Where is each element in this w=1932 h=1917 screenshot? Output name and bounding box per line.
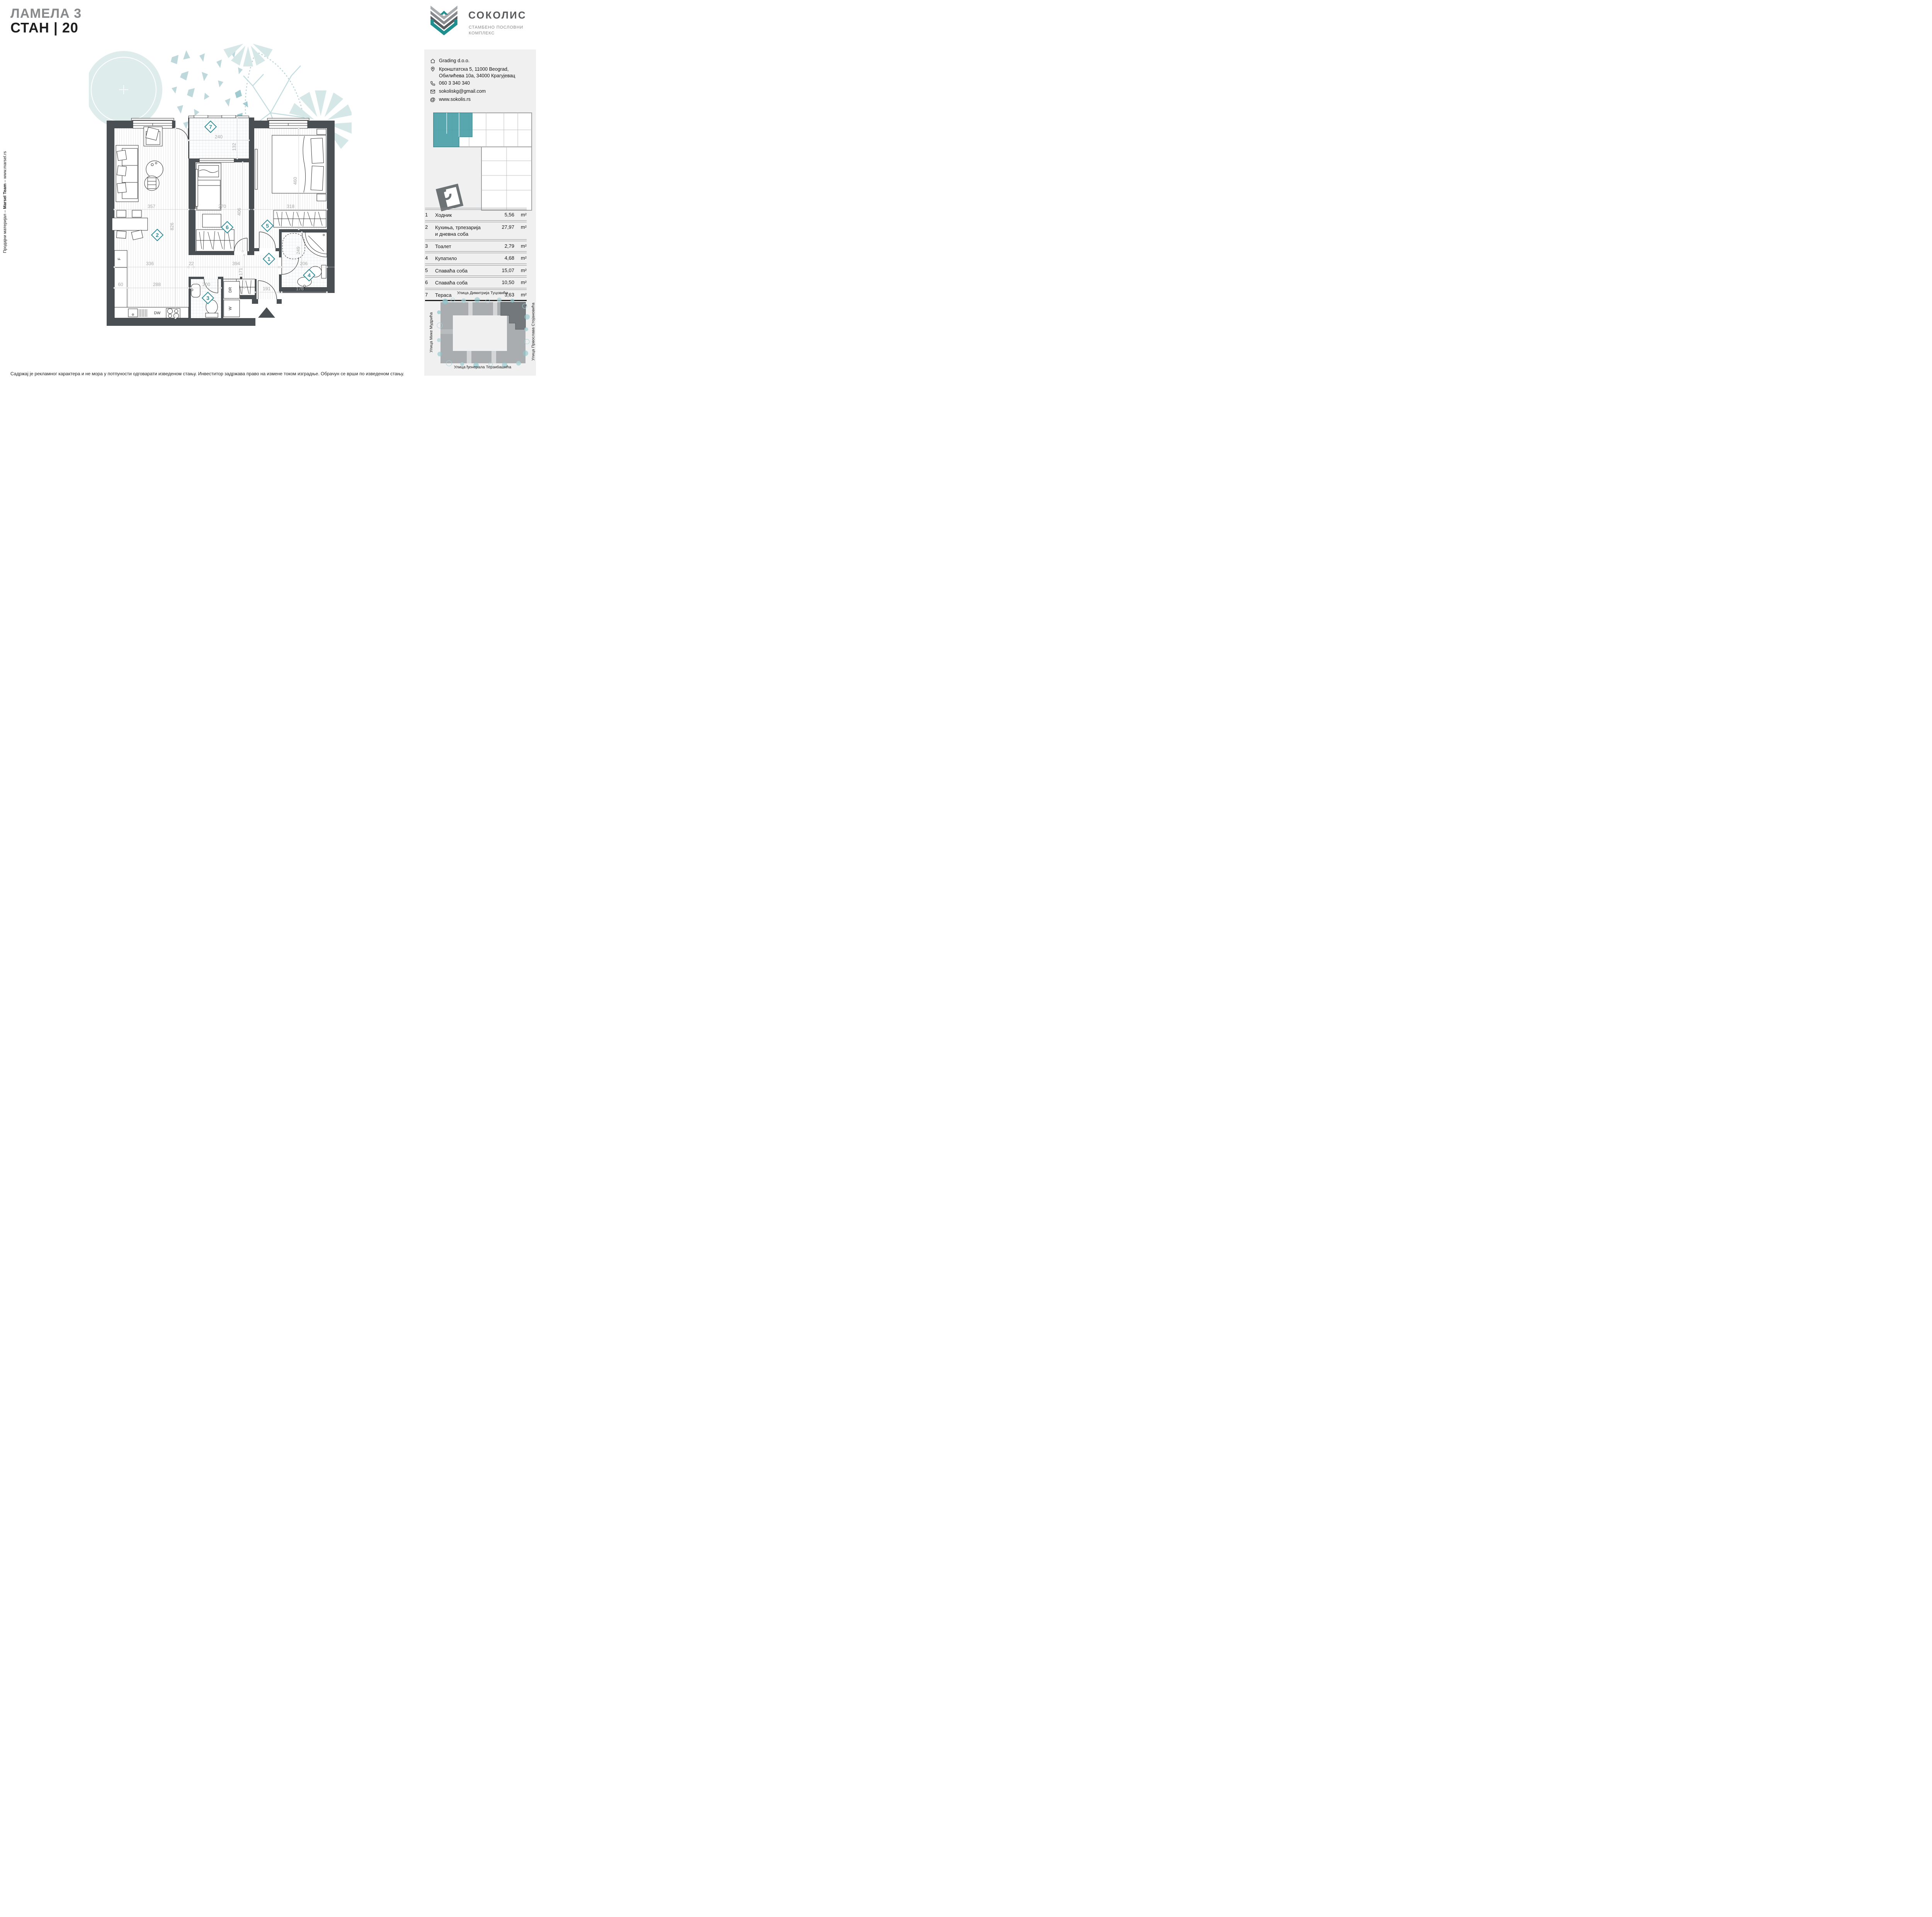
tv-panel-bedroom2 (196, 169, 198, 206)
dim-bedroom2-w: 270 (218, 204, 226, 209)
window-sill (131, 118, 174, 120)
nightstand (317, 194, 326, 201)
flyer-page: ЛАМЕЛА 3 СТАН | 20 Продајни материјал – … (0, 0, 542, 383)
wardrobe-bedroom2 (196, 230, 234, 251)
dim-bedroom1-h: 460 (293, 177, 298, 185)
fridge-label: F (117, 258, 122, 260)
room-number-bedroom2: 6 (226, 224, 229, 230)
disclaimer-text: Садржај је рекламног карактера и не мора… (10, 371, 455, 376)
website-url: www.sokolis.rs (439, 97, 471, 102)
dim-hall-w: 394 (232, 261, 240, 266)
nightstand (317, 129, 326, 134)
dim-entry-w: 191 (263, 286, 270, 291)
tree-burst-top (223, 39, 272, 66)
dim-sink-w: 176 (296, 286, 304, 291)
dishwasher-label: DW (154, 311, 161, 315)
home-icon (430, 58, 436, 65)
bedroom2-desk (202, 214, 221, 227)
table-row: 6Спаваћа соба10,50m² (425, 278, 527, 288)
table-row: 3Тоалет2,79m² (425, 241, 527, 252)
entrance-arrow (258, 307, 275, 318)
company-address: Кронштатска 5, 11000 Beograd, Обилићева … (439, 66, 536, 79)
dim-toilet-w: 200 (202, 282, 210, 287)
street-label-top: Улица Димитрија Туцовића (457, 291, 508, 295)
phone-number: 060 3 340 340 (439, 80, 470, 87)
room-number-bedroom1: 5 (266, 223, 269, 229)
floor-plan: DW F (107, 115, 335, 326)
dim-counter-d: 60 (118, 282, 123, 287)
dim-bath-w: 206 (300, 261, 308, 266)
at-icon: @ (430, 97, 436, 102)
armchair (144, 127, 162, 146)
dim-bedroom2-h: 406 (236, 208, 242, 216)
logo-mark-icon (430, 5, 458, 36)
table-row: 1Ходник5,56m² (425, 210, 527, 220)
dim-kitchen-w: 336 (146, 261, 154, 266)
street-label-right: Улица Првослава Стојановића (531, 303, 536, 361)
brand-subtitle: СТАМБЕНО ПОСЛОВНИ КОМПЛЕКС (469, 25, 523, 36)
railing-planter (194, 115, 208, 118)
room-number-bathroom: 4 (308, 272, 311, 278)
email-address: sokoliskg@gmail.com (439, 89, 486, 95)
location-pin-icon (430, 66, 436, 79)
note-suffix: – www.marsel.rs (3, 151, 7, 184)
page-title: ЛАМЕЛА 3 СТАН | 20 (10, 7, 82, 35)
company-name: Grading d.o.o. (439, 58, 469, 65)
lamela-title: ЛАМЕЛА 3 (10, 7, 82, 20)
phone-icon (430, 80, 436, 87)
dim-living-w: 357 (148, 204, 155, 209)
site-plan (429, 297, 536, 369)
street-label-left: Улица Мике Мудрића (429, 312, 434, 352)
wardrobe-bedroom1 (274, 210, 326, 227)
table-row: 2Кухиња, трпезаријаи дневна соба27,97m² (425, 222, 527, 239)
dim-living-h: 826 (169, 223, 175, 230)
dim-wall: 22 (189, 261, 194, 266)
dim-counter-w: 288 (153, 282, 161, 287)
room-number-living: 2 (156, 232, 159, 238)
room-number-hall: 1 (267, 256, 270, 262)
note-prefix: Продајни материјал – (3, 209, 7, 253)
rooms-table: 1Ходник5,56m² 2Кухиња, трпезаријаи дневн… (425, 208, 527, 312)
sofa (116, 145, 138, 202)
dryer-label: DR (228, 287, 233, 293)
mail-icon (430, 89, 436, 95)
dim-terrace-h: 132 (231, 143, 237, 151)
street-label-bottom: Улица ђенерала Терзибашића (454, 365, 511, 369)
dim-terrace-w: 240 (215, 134, 223, 140)
tv-panel-bedroom1 (255, 149, 257, 189)
brand-name: СОКОЛИС (468, 9, 527, 21)
dim-hall-h: 171 (238, 268, 243, 276)
room-number-terrace: 7 (209, 124, 212, 130)
table-row: 4Купатило4,68m² (425, 253, 527, 264)
north-compass-icon (437, 185, 462, 209)
contact-block: Grading d.o.o. Кронштатска 5, 11000 Beog… (430, 58, 537, 103)
note-team: Marsel Team (3, 184, 7, 209)
brand-logo: СОКОЛИС СТАМБЕНО ПОСЛОВНИ КОМПЛЕКС (430, 4, 536, 43)
dim-bedroom1-w: 318 (287, 204, 294, 209)
dim-shower-h: 249 (296, 247, 301, 254)
double-bed (272, 129, 326, 201)
kitchen-sink (128, 309, 138, 317)
room-number-toilet: 3 (206, 295, 209, 301)
table-row: 5Спаваћа соба15,07m² (425, 266, 527, 276)
sales-material-note: Продајни материјал – Marsel Team – www.m… (3, 151, 7, 253)
railing-planter (222, 115, 236, 118)
washer-label: W (228, 306, 233, 310)
apartment-title: СТАН | 20 (10, 20, 82, 35)
key-plan (432, 111, 535, 214)
site-courtyard (453, 315, 507, 351)
